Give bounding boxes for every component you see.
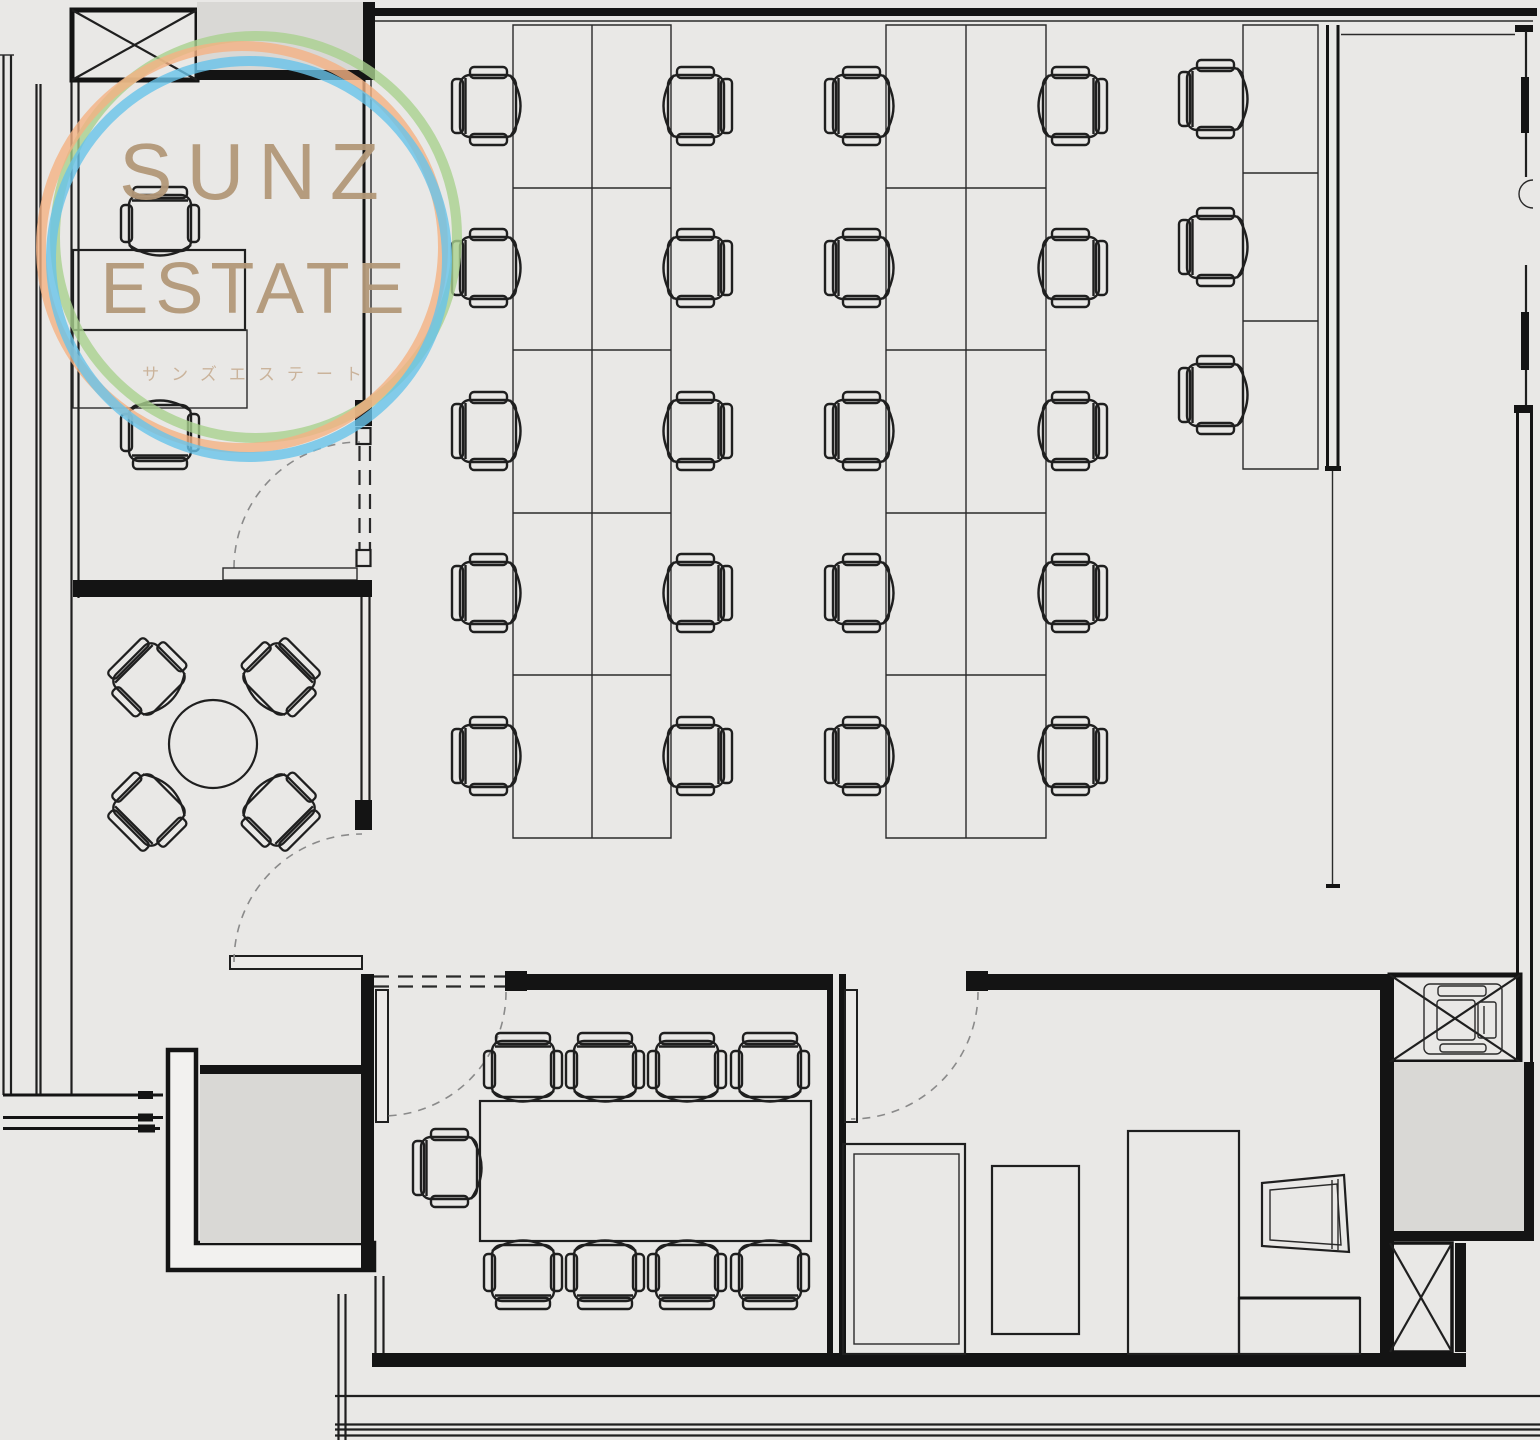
window-wall — [1514, 25, 1533, 1068]
cabinet — [1128, 1131, 1239, 1354]
elevator-cab — [1385, 1062, 1534, 1241]
door-leaf — [845, 990, 857, 1122]
door-post — [355, 400, 372, 426]
desk — [73, 330, 247, 408]
round-table — [169, 700, 257, 788]
desk-bank-3 — [1179, 25, 1318, 469]
pipe-shaft-top-left — [72, 10, 197, 80]
door-swing — [234, 834, 362, 962]
entrance-vestibule — [168, 974, 374, 1270]
low-cabinet — [1239, 1298, 1360, 1354]
door-leaf — [230, 956, 362, 969]
elevator-hall — [197, 2, 375, 80]
desk-bank-1 — [452, 25, 732, 838]
chair — [231, 629, 329, 727]
partition-wall — [1325, 25, 1515, 888]
chair — [121, 187, 199, 256]
elevator-core — [1385, 975, 1534, 1352]
floor-plan-page: SUNZ ESTATE サンズエステート — [0, 0, 1540, 1440]
floor-plan-drawing — [0, 0, 1540, 1440]
open-office — [452, 25, 1515, 888]
small-meeting-room — [73, 568, 372, 969]
door-swing — [382, 992, 506, 1116]
chair — [121, 401, 199, 470]
door-post — [966, 971, 988, 991]
desk — [73, 250, 245, 330]
cabinet — [1262, 1175, 1349, 1252]
executive-office — [73, 80, 372, 568]
counter — [223, 568, 357, 580]
door-swing — [234, 442, 360, 568]
desk-bank-2 — [825, 25, 1107, 838]
chair — [231, 762, 329, 860]
conference-table — [480, 1101, 811, 1241]
door-swing — [851, 992, 978, 1119]
door-post — [355, 800, 372, 830]
door-leaf — [376, 990, 388, 1122]
machine-shaft — [1390, 975, 1520, 1062]
door-post — [505, 971, 527, 991]
storage-room — [843, 971, 1394, 1360]
lower-shaft — [1390, 1243, 1466, 1352]
cabinet — [843, 1144, 965, 1354]
meeting-room — [372, 971, 1466, 1367]
cabinet — [992, 1166, 1079, 1334]
